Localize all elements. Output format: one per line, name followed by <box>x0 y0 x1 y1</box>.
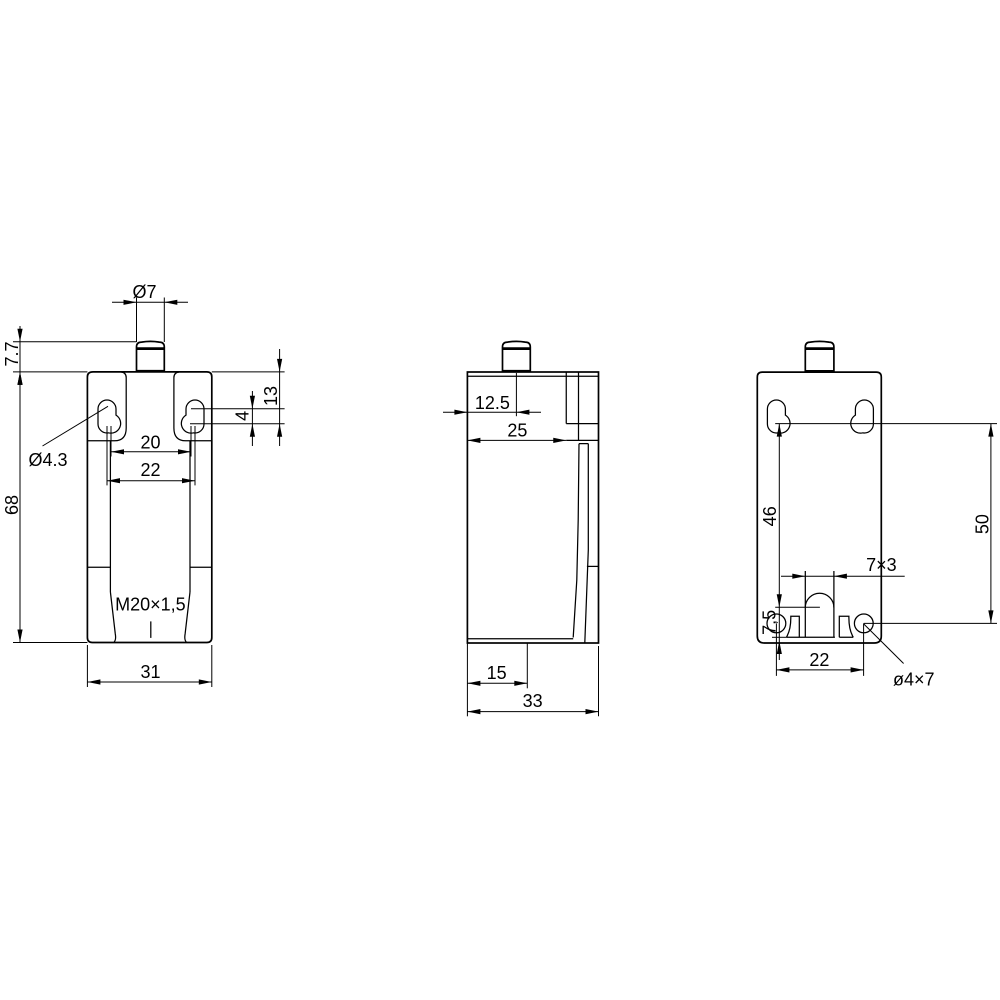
svg-text:46: 46 <box>760 506 780 526</box>
svg-text:7×3: 7×3 <box>866 555 897 575</box>
svg-text:22: 22 <box>809 650 829 670</box>
svg-text:13: 13 <box>261 386 281 406</box>
svg-text:ø4×7: ø4×7 <box>893 669 935 689</box>
svg-text:22: 22 <box>140 460 160 480</box>
svg-text:25: 25 <box>507 421 527 441</box>
svg-text:7,5: 7,5 <box>759 610 779 635</box>
svg-text:Ø7: Ø7 <box>132 282 156 302</box>
svg-text:31: 31 <box>140 662 160 682</box>
svg-text:15: 15 <box>487 663 507 683</box>
svg-text:4: 4 <box>233 411 253 421</box>
svg-text:Ø4.3: Ø4.3 <box>28 450 67 470</box>
svg-text:33: 33 <box>523 691 543 711</box>
svg-text:20: 20 <box>140 432 160 452</box>
svg-text:7.7: 7.7 <box>2 341 22 366</box>
svg-text:M20×1,5: M20×1,5 <box>115 595 186 615</box>
svg-text:12.5: 12.5 <box>475 393 510 413</box>
svg-text:68: 68 <box>2 495 22 515</box>
svg-text:50: 50 <box>973 514 993 534</box>
